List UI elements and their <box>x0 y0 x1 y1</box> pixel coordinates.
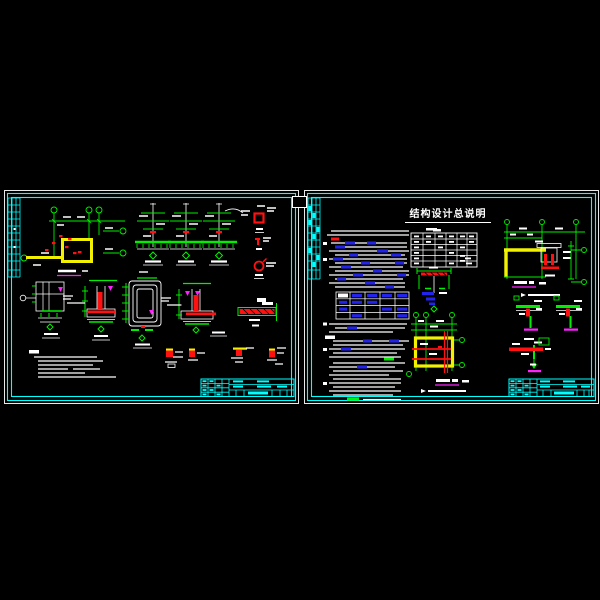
pile-cap-plan-detail <box>20 282 64 338</box>
strip-footing-detail <box>238 298 277 326</box>
revision-strip <box>8 198 20 277</box>
middle-plan-detail <box>407 313 470 394</box>
footing-section-1 <box>135 203 171 265</box>
spec-table <box>411 228 477 267</box>
cad-viewport: 结构设计总说明 <box>0 0 600 600</box>
stirrup-plan-detail <box>122 272 161 348</box>
notes-column <box>323 231 409 401</box>
rebar-anchorage-detail <box>417 267 451 313</box>
sheet-border <box>308 194 596 401</box>
left-sheet-graphics <box>5 191 298 403</box>
connection-details-row <box>165 348 286 368</box>
top-right-plan-detail <box>504 220 587 298</box>
foundation-plan-detail <box>21 207 126 276</box>
left-drawing-sheet <box>4 190 299 404</box>
t-footing-section-2 <box>161 284 227 337</box>
general-notes-text <box>29 350 116 377</box>
column-base-detail-1 <box>514 296 542 331</box>
right-drawing-sheet: 结构设计总说明 <box>304 190 599 404</box>
title-block <box>201 379 294 397</box>
t-footing-section-1 <box>63 281 117 341</box>
revision-strip <box>308 198 320 279</box>
column-base-detail-2 <box>554 296 582 331</box>
footing-section-2 <box>168 203 204 265</box>
title-block <box>509 379 594 397</box>
right-sheet-graphics <box>305 191 598 403</box>
legend-symbols <box>254 206 276 279</box>
junction-marker-box <box>292 196 307 208</box>
beam-embed-detail <box>509 338 551 372</box>
footing-section-3 <box>201 203 250 265</box>
